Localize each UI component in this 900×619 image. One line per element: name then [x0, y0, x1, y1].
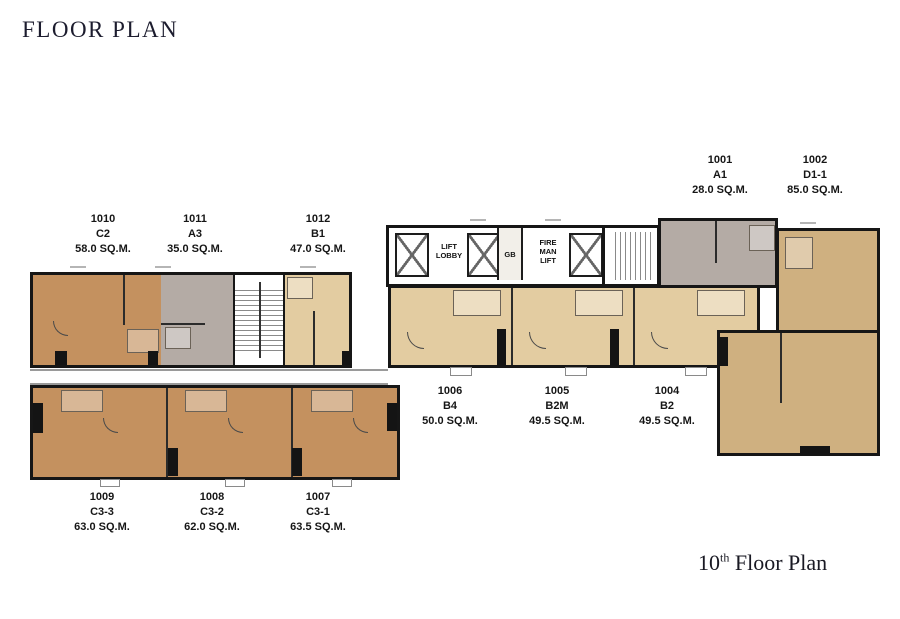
- unit-1002-room-extension: [717, 330, 880, 456]
- partition-wall: [780, 333, 782, 403]
- wall-pier: [55, 351, 67, 365]
- unit-number: 1005: [502, 384, 612, 399]
- fire-man-lift-label: FIRE MAN LIFT: [533, 238, 563, 265]
- unit-type: C3-2: [157, 505, 267, 520]
- unit-area: 49.5 SQ.M.: [502, 414, 612, 429]
- unit-type: B1: [263, 227, 373, 242]
- floor-number-suffix: th: [720, 551, 729, 565]
- unit-area: 47.0 SQ.M.: [263, 242, 373, 257]
- unit-1011-room: [161, 275, 233, 365]
- wall-pier: [342, 351, 350, 365]
- lift-lobby-label: LIFT LOBBY: [433, 242, 465, 260]
- wall-pier: [148, 351, 158, 365]
- lift-shaft-icon: [467, 233, 501, 277]
- stair-treads-icon: [611, 232, 651, 280]
- door-swing-arc: [651, 332, 668, 349]
- unit-number: 1006: [395, 384, 505, 399]
- unit-1012-room: [285, 275, 349, 365]
- unit-number: 1011: [140, 212, 250, 227]
- wall-pier: [497, 329, 506, 366]
- unit-number: 1002: [760, 153, 870, 168]
- door-swing-arc: [103, 418, 118, 433]
- unit-label-1001: 1001 A1 28.0 SQ.M.: [665, 153, 775, 198]
- bathroom-outline: [185, 390, 227, 412]
- floor-number: 10: [698, 550, 720, 575]
- unit-area: 35.0 SQ.M.: [140, 242, 250, 257]
- west-wing-upper-block: [30, 272, 352, 368]
- wall-pier: [719, 337, 728, 366]
- unit-area: 63.5 SQ.M.: [263, 520, 373, 535]
- wall-pier: [168, 448, 178, 476]
- unit-number: 1001: [665, 153, 775, 168]
- partition-wall: [633, 288, 635, 365]
- unit-label-1004: 1004 B2 49.5 SQ.M.: [612, 384, 722, 429]
- dimension-tick: [545, 219, 561, 221]
- dimension-tick: [155, 266, 171, 268]
- unit-area: 49.5 SQ.M.: [612, 414, 722, 429]
- unit-area: 63.0 SQ.M.: [47, 520, 157, 535]
- unit-type: B4: [395, 399, 505, 414]
- unit-number: 1004: [612, 384, 722, 399]
- core-block: LIFT LOBBY GB FIRE MAN LIFT: [386, 225, 660, 287]
- bathroom-outline: [749, 225, 775, 251]
- unit-area: 85.0 SQ.M.: [760, 183, 870, 198]
- door-swing-arc: [529, 332, 546, 349]
- bathroom-outline: [165, 327, 191, 349]
- unit-area: 50.0 SQ.M.: [395, 414, 505, 429]
- partition-wall: [511, 288, 513, 365]
- unit-label-1009: 1009 C3-3 63.0 SQ.M.: [47, 490, 157, 535]
- unit-number: 1009: [47, 490, 157, 505]
- unit-type: C3-1: [263, 505, 373, 520]
- balcony-ledge: [685, 367, 707, 376]
- balcony-ledge: [450, 367, 472, 376]
- bathroom-outline: [453, 290, 501, 316]
- door-swing-arc: [228, 418, 243, 433]
- bathroom-outline: [785, 237, 813, 269]
- bathroom-outline: [575, 290, 623, 316]
- bathroom-outline: [127, 329, 159, 353]
- door-swing-arc: [407, 332, 424, 349]
- door-swing-arc: [53, 321, 68, 336]
- unit-1001-room: [658, 218, 778, 288]
- wall-pier: [610, 329, 619, 366]
- unit-label-1011: 1011 A3 35.0 SQ.M.: [140, 212, 250, 257]
- garbage-room: GB: [497, 228, 523, 280]
- bathroom-outline: [287, 277, 313, 299]
- unit-label-1007: 1007 C3-1 63.5 SQ.M.: [263, 490, 373, 535]
- unit-number: 1012: [263, 212, 373, 227]
- unit-number: 1007: [263, 490, 373, 505]
- balcony-ledge: [225, 479, 245, 487]
- door-swing-arc: [353, 418, 368, 433]
- unit-1010-room: [33, 275, 161, 365]
- floor-plan-page: FLOOR PLAN LIFT LOB: [0, 0, 900, 619]
- dimension-tick: [470, 219, 486, 221]
- balcony-ledge: [100, 479, 120, 487]
- lift-shaft-icon: [395, 233, 429, 277]
- mid-wing-block: [388, 285, 760, 368]
- partition-wall: [123, 275, 125, 325]
- lift-shaft-icon: [569, 233, 603, 277]
- unit-type: B2: [612, 399, 722, 414]
- partition-wall: [715, 221, 717, 263]
- gb-label: GB: [504, 250, 515, 259]
- staircase-core: [602, 228, 657, 284]
- unit-number: 1008: [157, 490, 267, 505]
- dimension-tick: [300, 266, 316, 268]
- corridor: [30, 369, 388, 385]
- bathroom-outline: [311, 390, 353, 412]
- balcony-ledge: [332, 479, 352, 487]
- unit-label-1008: 1008 C3-2 62.0 SQ.M.: [157, 490, 267, 535]
- unit-area: 28.0 SQ.M.: [665, 183, 775, 198]
- unit-type: C3-3: [47, 505, 157, 520]
- dimension-tick: [800, 222, 816, 224]
- dimension-tick: [70, 266, 86, 268]
- staircase-west: [233, 275, 285, 365]
- unit-label-1012: 1012 B1 47.0 SQ.M.: [263, 212, 373, 257]
- west-wing-lower-block: [30, 385, 400, 480]
- bathroom-outline: [61, 390, 103, 412]
- floor-caption: 10th Floor Plan: [698, 550, 827, 576]
- stair-rail: [259, 282, 261, 358]
- unit-label-1006: 1006 B4 50.0 SQ.M.: [395, 384, 505, 429]
- unit-type: D1-1: [760, 168, 870, 183]
- unit-type: A3: [140, 227, 250, 242]
- bathroom-outline: [697, 290, 745, 316]
- unit-label-1005: 1005 B2M 49.5 SQ.M.: [502, 384, 612, 429]
- unit-type: B2M: [502, 399, 612, 414]
- unit-area: 62.0 SQ.M.: [157, 520, 267, 535]
- wall-pier: [292, 448, 302, 476]
- partition-wall: [161, 323, 205, 325]
- floor-caption-text: Floor Plan: [729, 550, 827, 575]
- partition-wall: [313, 311, 315, 365]
- wall-pier: [33, 403, 43, 433]
- wall-pier: [800, 446, 830, 455]
- unit-type: A1: [665, 168, 775, 183]
- unit-label-1002: 1002 D1-1 85.0 SQ.M.: [760, 153, 870, 198]
- balcony-ledge: [565, 367, 587, 376]
